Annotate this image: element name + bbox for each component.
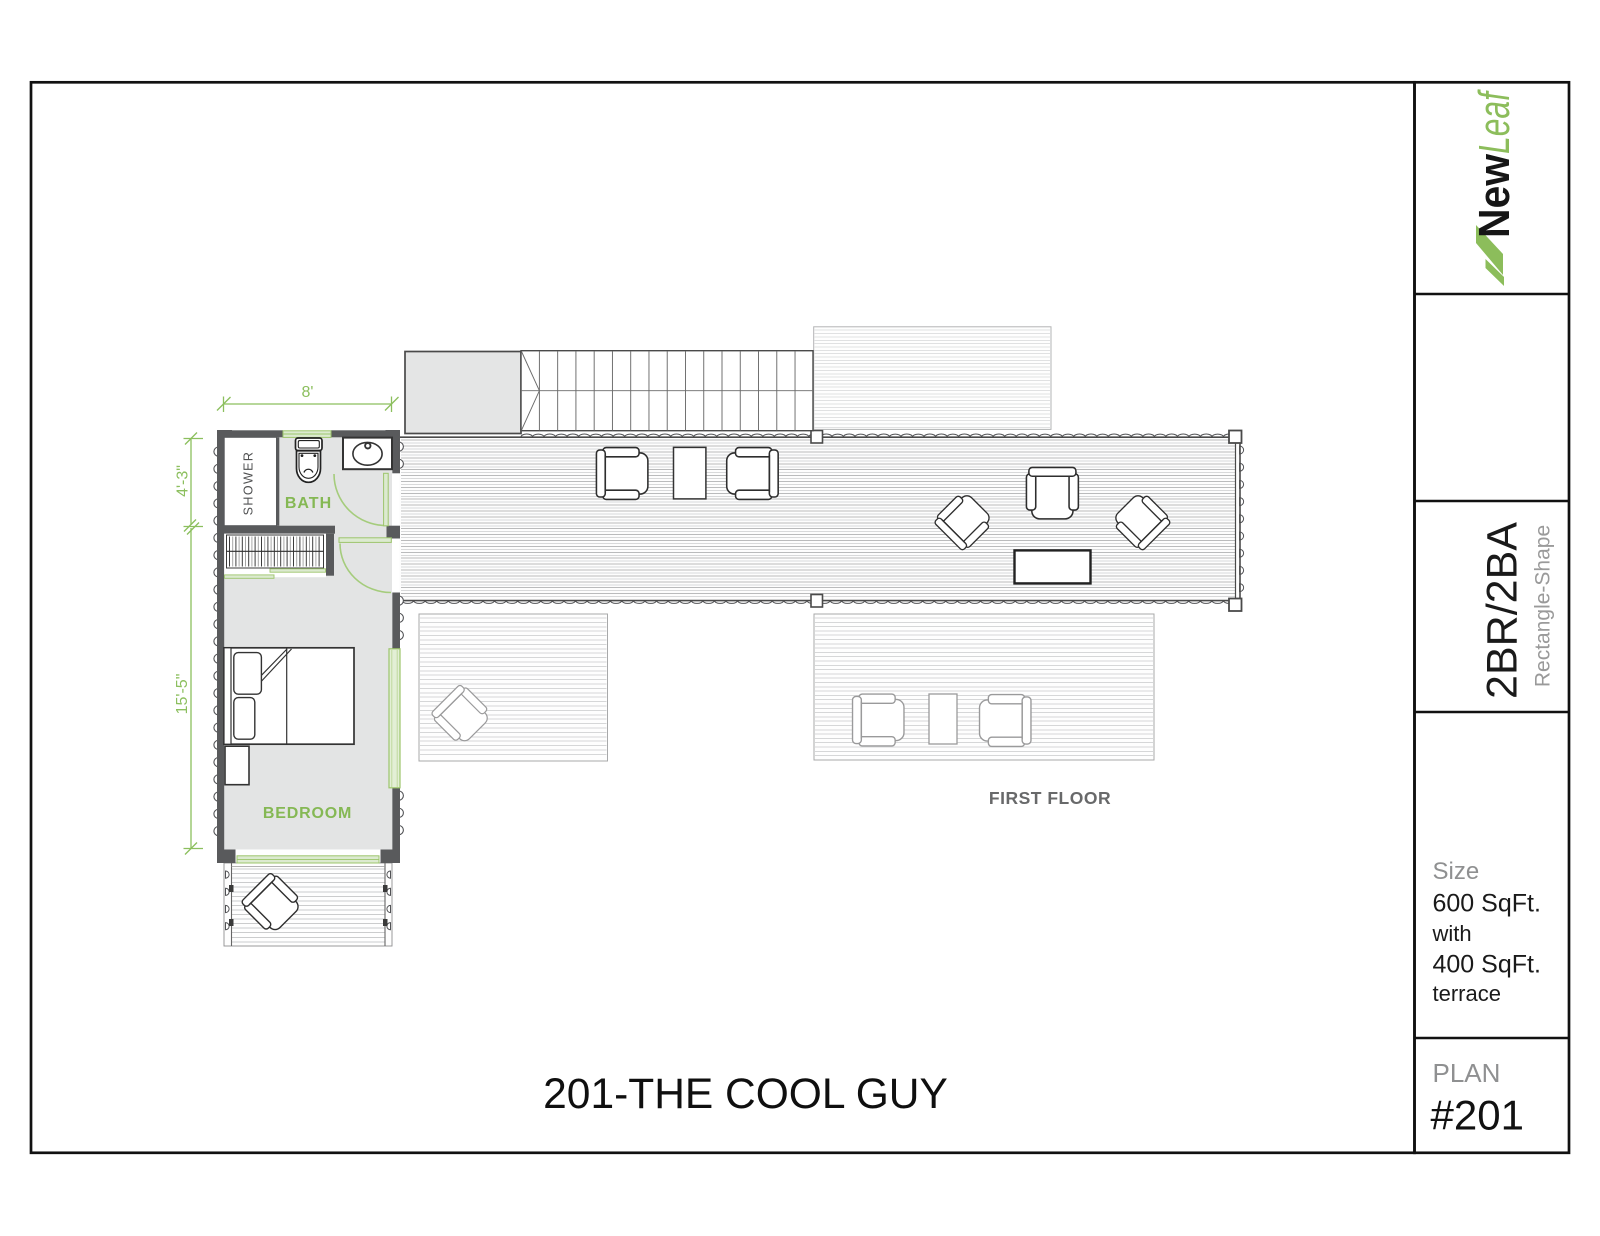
svg-text:201-THE COOL GUY: 201-THE COOL GUY [543,1071,948,1118]
svg-text:Size: Size [1433,858,1480,885]
svg-text:SHOWER: SHOWER [242,451,256,516]
svg-text:FIRST FLOOR: FIRST FLOOR [989,788,1111,808]
svg-text:with: with [1432,921,1472,946]
svg-text:400 SqFt.: 400 SqFt. [1433,951,1541,979]
svg-text:terrace: terrace [1433,981,1501,1006]
svg-text:New: New [1470,153,1519,238]
svg-text:Rectangle-Shape: Rectangle-Shape [1532,525,1555,687]
svg-text:BEDROOM: BEDROOM [263,805,352,822]
svg-text:600 SqFt.: 600 SqFt. [1433,890,1541,918]
svg-text:8': 8' [302,384,314,401]
svg-text:4'-3": 4'-3" [175,465,192,497]
svg-text:#201: #201 [1431,1092,1524,1139]
svg-text:15'-5": 15'-5" [174,674,191,715]
svg-text:BATH: BATH [285,495,332,512]
svg-text:2BR/2BA: 2BR/2BA [1479,522,1527,699]
svg-text:Leaf: Leaf [1470,89,1519,154]
svg-text:PLAN: PLAN [1433,1058,1501,1088]
